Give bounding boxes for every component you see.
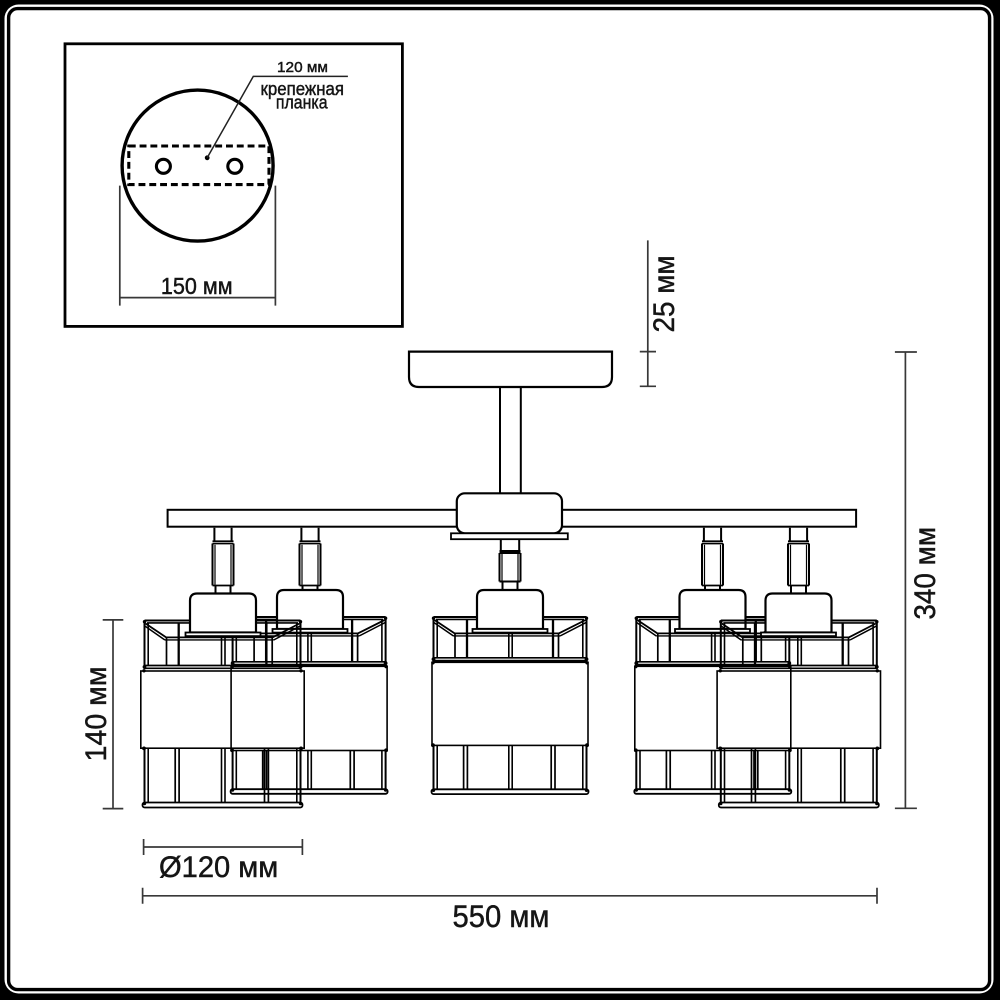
svg-text:планка: планка [276, 91, 328, 112]
svg-text:550 мм: 550 мм [453, 898, 550, 934]
svg-text:120 мм: 120 мм [277, 60, 328, 76]
svg-text:150 мм: 150 мм [161, 273, 233, 299]
svg-text:Ø120 мм: Ø120 мм [159, 851, 278, 884]
svg-text:340 мм: 340 мм [909, 527, 942, 620]
svg-text:25 мм: 25 мм [648, 256, 681, 333]
svg-text:140 мм: 140 мм [80, 667, 113, 762]
